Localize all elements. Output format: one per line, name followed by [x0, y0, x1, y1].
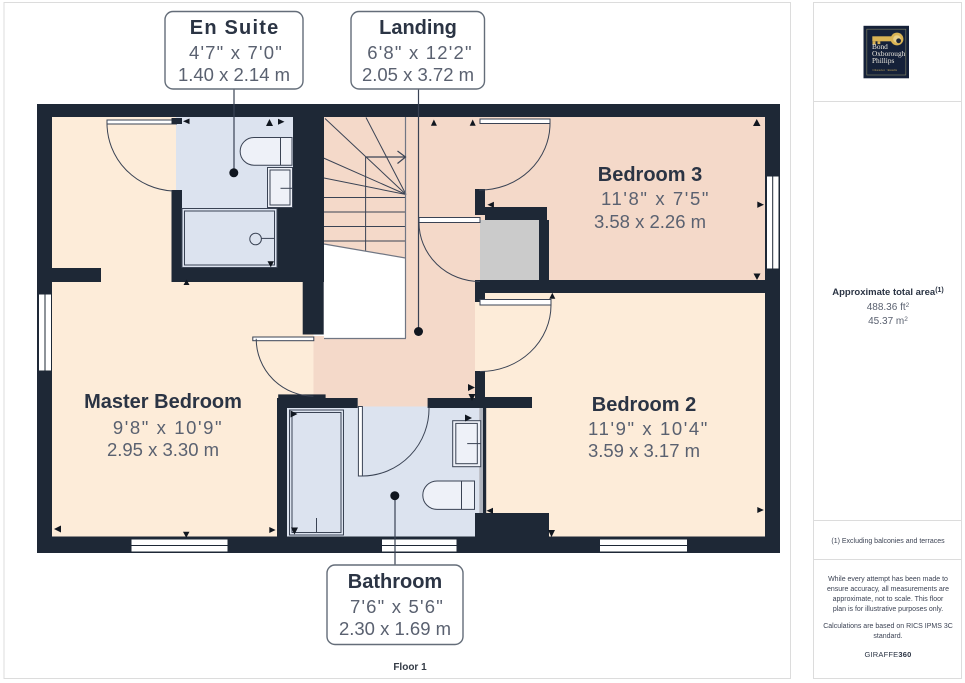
svg-text:Floor 1: Floor 1 [393, 662, 427, 673]
svg-text:11'8" x 7'5": 11'8" x 7'5" [601, 188, 710, 209]
svg-text:Bathroom: Bathroom [348, 571, 442, 593]
svg-text:plan is for illustrative purpo: plan is for illustrative purposes only. [833, 606, 943, 613]
svg-text:Character · Results: Character · Results [873, 68, 898, 72]
svg-text:En Suite: En Suite [190, 17, 280, 39]
svg-text:Bedroom 3: Bedroom 3 [598, 164, 702, 186]
svg-text:3.59 x 3.17 m: 3.59 x 3.17 m [588, 440, 700, 461]
svg-text:2.05 x 3.72 m: 2.05 x 3.72 m [362, 64, 474, 85]
svg-text:GIRAFFE360: GIRAFFE360 [864, 650, 911, 659]
svg-text:Calculations are based on RICS: Calculations are based on RICS IPMS 3C [823, 623, 953, 630]
svg-text:9'8" x 10'9": 9'8" x 10'9" [113, 417, 223, 438]
svg-text:(1) Excluding balconies and te: (1) Excluding balconies and terraces [831, 538, 945, 545]
svg-text:Approximate total area(1): Approximate total area(1) [832, 287, 944, 299]
svg-text:7'6" x 5'6": 7'6" x 5'6" [350, 596, 444, 617]
svg-text:488.36 ft2: 488.36 ft2 [867, 302, 910, 314]
svg-text:Landing: Landing [379, 17, 457, 39]
svg-text:Bedroom 2: Bedroom 2 [592, 394, 696, 416]
svg-text:Phillips: Phillips [872, 56, 894, 65]
svg-text:2.95 x 3.30 m: 2.95 x 3.30 m [107, 439, 219, 460]
svg-text:3.58 x 2.26 m: 3.58 x 2.26 m [594, 211, 706, 232]
svg-text:1.40 x 2.14 m: 1.40 x 2.14 m [178, 64, 290, 85]
svg-text:4'7" x 7'0": 4'7" x 7'0" [189, 42, 283, 63]
svg-text:11'9" x 10'4": 11'9" x 10'4" [588, 418, 709, 439]
svg-text:Master Bedroom: Master Bedroom [84, 391, 242, 413]
svg-text:ensure accuracy, all measureme: ensure accuracy, all measurements are [827, 586, 949, 593]
svg-text:2.30 x 1.69 m: 2.30 x 1.69 m [339, 618, 451, 639]
svg-text:45.37 m2: 45.37 m2 [868, 316, 908, 328]
svg-text:approximate, not to scale. Thi: approximate, not to scale. This floor [833, 596, 944, 603]
svg-text:standard.: standard. [873, 633, 902, 640]
svg-text:6'8" x 12'2": 6'8" x 12'2" [367, 42, 473, 63]
svg-text:While every attempt has been m: While every attempt has been made to [828, 576, 948, 583]
